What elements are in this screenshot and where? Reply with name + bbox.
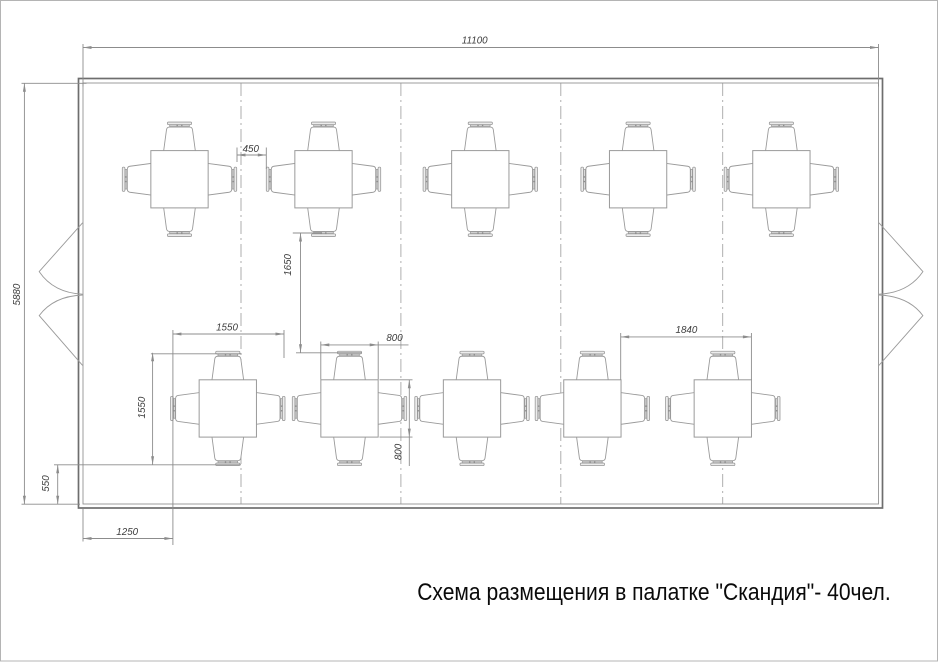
svg-text:800: 800 — [394, 443, 405, 460]
svg-text:Схема размещения в палатке "Ск: Схема размещения в палатке "Скандия"- 40… — [417, 579, 891, 606]
svg-text:1550: 1550 — [137, 396, 148, 418]
svg-text:1840: 1840 — [676, 325, 698, 336]
svg-text:800: 800 — [386, 333, 403, 344]
svg-text:1650: 1650 — [283, 253, 294, 275]
svg-text:1550: 1550 — [216, 322, 238, 333]
svg-text:450: 450 — [243, 144, 260, 155]
svg-text:1250: 1250 — [116, 527, 138, 538]
svg-text:11100: 11100 — [462, 36, 488, 47]
svg-text:5880: 5880 — [12, 283, 23, 305]
svg-text:550: 550 — [41, 475, 52, 492]
